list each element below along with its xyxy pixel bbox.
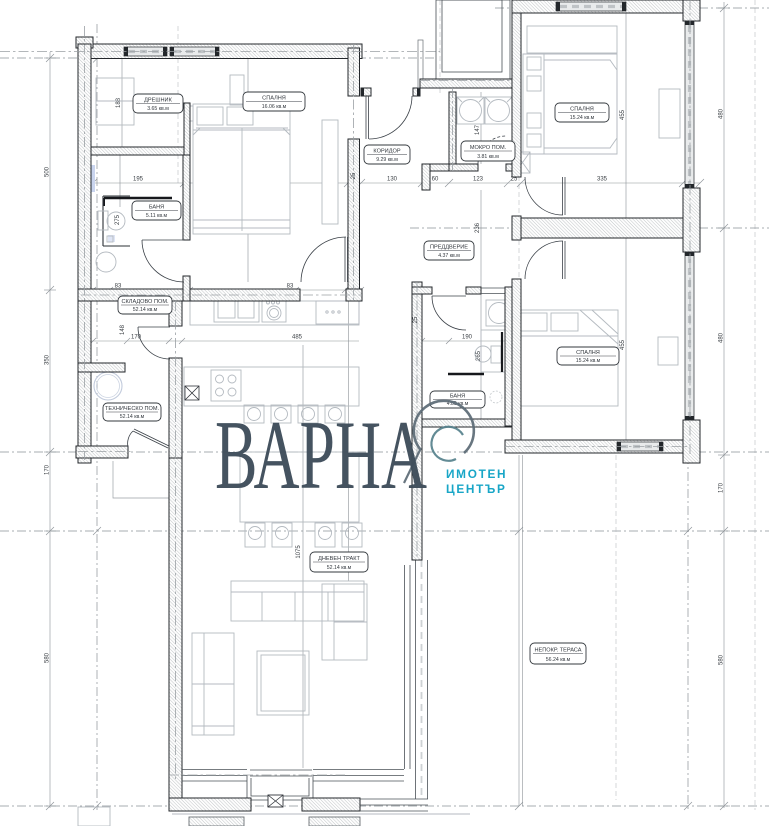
- svg-text:СКЛАДОВО ПОМ.: СКЛАДОВО ПОМ.: [121, 299, 169, 305]
- svg-text:480: 480: [719, 108, 725, 119]
- svg-text:580: 580: [719, 654, 725, 665]
- svg-text:580: 580: [45, 652, 51, 663]
- svg-text:1075: 1075: [296, 545, 302, 559]
- svg-text:56.24 кв.м: 56.24 кв.м: [546, 657, 571, 663]
- svg-text:БАНЯ: БАНЯ: [149, 205, 164, 211]
- svg-text:16.06 кв.м: 16.06 кв.м: [262, 104, 287, 110]
- svg-text:195: 195: [133, 177, 144, 183]
- svg-text:25: 25: [413, 316, 419, 323]
- svg-text:52.14 кв.м: 52.14 кв.м: [133, 307, 158, 313]
- svg-text:123: 123: [473, 177, 484, 183]
- svg-text:СПАЛНЯ: СПАЛНЯ: [262, 96, 286, 102]
- svg-text:188: 188: [116, 97, 122, 108]
- svg-text:455: 455: [620, 109, 626, 120]
- svg-text:485: 485: [292, 335, 303, 341]
- svg-text:ПРЕДДВЕРИЕ: ПРЕДДВЕРИЕ: [430, 245, 468, 251]
- svg-text:52.14 кв.м: 52.14 кв.м: [327, 565, 352, 571]
- svg-text:ВАРНА: ВАРНА: [215, 401, 427, 510]
- svg-text:455: 455: [620, 339, 626, 350]
- svg-text:25: 25: [351, 172, 357, 179]
- svg-text:170: 170: [45, 464, 51, 475]
- svg-text:СПАЛНЯ: СПАЛНЯ: [576, 350, 600, 356]
- svg-text:170: 170: [719, 482, 725, 493]
- svg-text:480: 480: [719, 332, 725, 343]
- svg-text:148: 148: [120, 324, 126, 335]
- svg-text:15.24 кв.м: 15.24 кв.м: [570, 115, 595, 121]
- svg-text:ИМОТЕН: ИМОТЕН: [446, 467, 507, 481]
- svg-text:СПАЛНЯ: СПАЛНЯ: [570, 107, 594, 113]
- svg-text:3.65 кв.м: 3.65 кв.м: [147, 106, 169, 112]
- svg-text:335: 335: [597, 177, 608, 183]
- svg-text:60: 60: [432, 177, 439, 183]
- svg-text:4.37 кв.м: 4.37 кв.м: [438, 253, 460, 259]
- svg-text:КОРИДОР: КОРИДОР: [373, 149, 400, 155]
- svg-text:ЦЕНТЪР: ЦЕНТЪР: [446, 482, 507, 496]
- svg-text:500: 500: [45, 166, 51, 177]
- svg-text:275: 275: [115, 214, 121, 225]
- svg-text:НЕПОКР. ТЕРАСА: НЕПОКР. ТЕРАСА: [535, 648, 582, 654]
- svg-text:15.24 кв.м: 15.24 кв.м: [576, 358, 601, 364]
- svg-text:350: 350: [45, 354, 51, 365]
- svg-text:МОКРО ПОМ.: МОКРО ПОМ.: [470, 145, 507, 151]
- svg-text:БАНЯ: БАНЯ: [450, 394, 465, 400]
- svg-text:ДНЕВЕН ТРАКТ: ДНЕВЕН ТРАКТ: [318, 556, 360, 562]
- svg-text:5.11 кв.м: 5.11 кв.м: [146, 213, 168, 219]
- svg-text:147: 147: [475, 124, 481, 135]
- svg-text:236: 236: [475, 222, 481, 233]
- svg-text:ДРЕШНИК: ДРЕШНИК: [144, 98, 172, 104]
- svg-text:3.81 кв.м: 3.81 кв.м: [477, 154, 499, 160]
- svg-text:190: 190: [462, 335, 473, 341]
- svg-text:130: 130: [387, 177, 398, 183]
- svg-text:ТЕХНИЧЕСКО ПОМ.: ТЕХНИЧЕСКО ПОМ.: [105, 406, 160, 412]
- svg-text:9.29 кв.м: 9.29 кв.м: [376, 157, 398, 163]
- svg-text:52.14 кв.м: 52.14 кв.м: [120, 414, 145, 420]
